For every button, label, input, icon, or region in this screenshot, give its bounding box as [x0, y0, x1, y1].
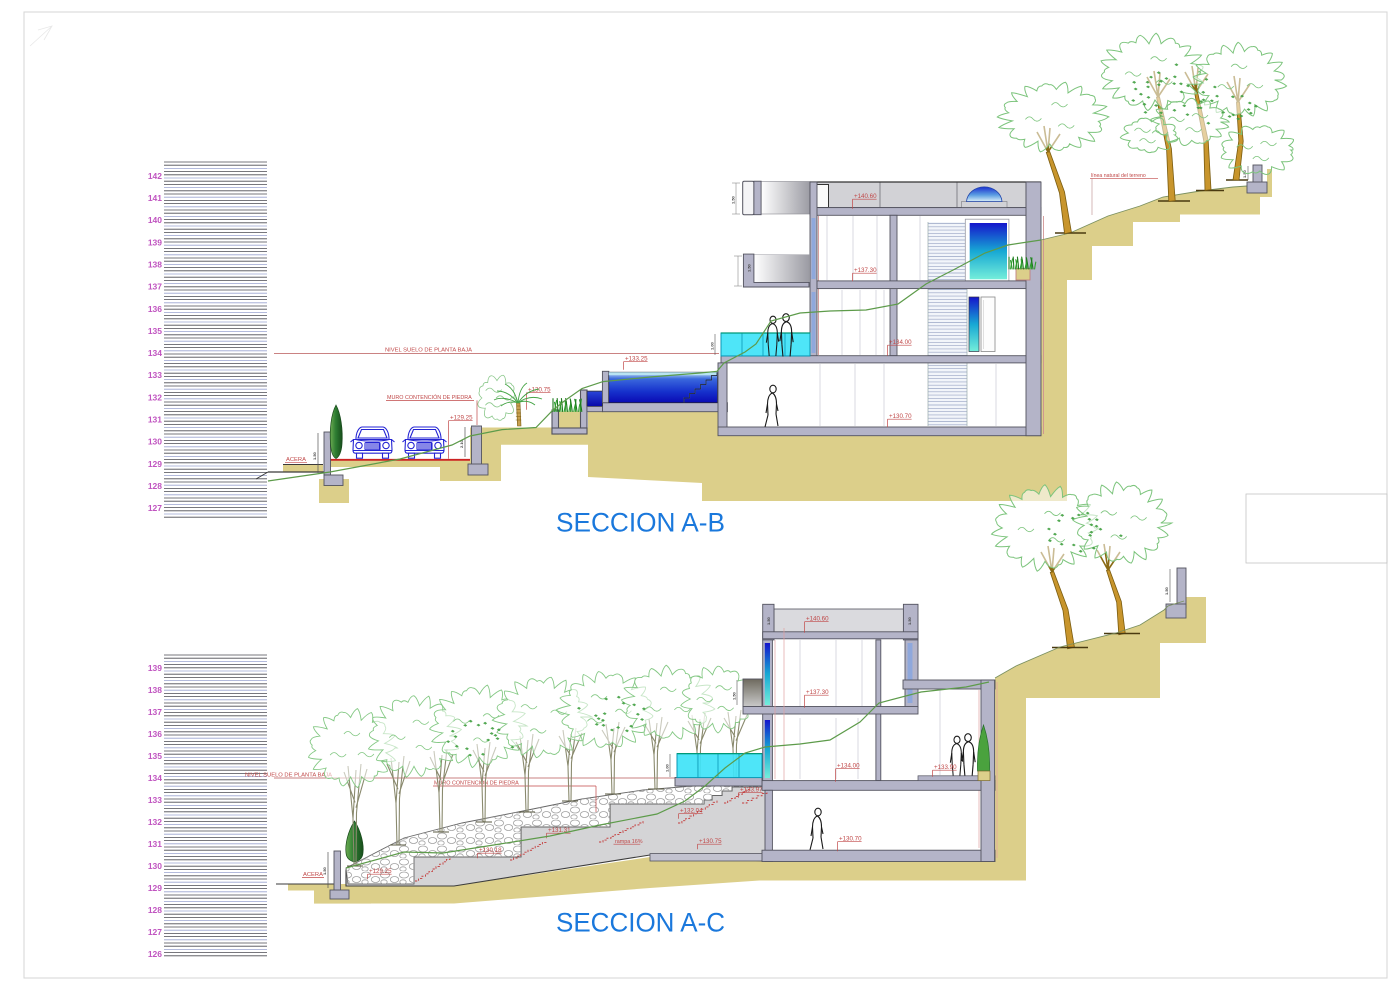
- svg-text:1.50: 1.50: [766, 616, 771, 625]
- svg-text:138: 138: [148, 685, 162, 695]
- svg-text:139: 139: [148, 237, 162, 247]
- svg-text:140: 140: [148, 215, 162, 225]
- svg-text:133: 133: [148, 370, 162, 380]
- svg-text:133: 133: [148, 795, 162, 805]
- svg-text:MURO CONTENCIÓN DE PIEDRA: MURO CONTENCIÓN DE PIEDRA: [387, 394, 472, 401]
- svg-text:136: 136: [148, 304, 162, 314]
- svg-text:138: 138: [148, 259, 162, 269]
- svg-text:132: 132: [148, 392, 162, 402]
- svg-text:131: 131: [148, 839, 162, 849]
- svg-text:142: 142: [148, 171, 162, 181]
- svg-text:SECCION A-C: SECCION A-C: [556, 908, 725, 938]
- svg-text:127: 127: [148, 927, 162, 937]
- svg-text:130: 130: [148, 861, 162, 871]
- svg-text:SECCION A-B: SECCION A-B: [556, 508, 725, 538]
- svg-text:128: 128: [148, 481, 162, 491]
- svg-text:141: 141: [148, 193, 162, 203]
- svg-text:129: 129: [148, 459, 162, 469]
- svg-text:MURO CONTENCIÓN DE PIEDRA: MURO CONTENCIÓN DE PIEDRA: [434, 780, 519, 787]
- svg-text:NIVEL SUELO DE PLANTA BAJA: NIVEL SUELO DE PLANTA BAJA: [245, 773, 332, 779]
- svg-text:1.00: 1.00: [710, 341, 715, 350]
- svg-text:137: 137: [148, 282, 162, 292]
- svg-text:1.50: 1.50: [732, 691, 737, 700]
- svg-text:1.00: 1.00: [665, 763, 670, 772]
- svg-text:1.50: 1.50: [907, 616, 912, 625]
- svg-text:129: 129: [148, 883, 162, 893]
- svg-text:131: 131: [148, 415, 162, 425]
- svg-text:136: 136: [148, 729, 162, 739]
- svg-text:130: 130: [148, 437, 162, 447]
- svg-text:134: 134: [148, 348, 162, 358]
- svg-text:135: 135: [148, 326, 162, 336]
- svg-text:1.50: 1.50: [312, 451, 317, 460]
- svg-text:127: 127: [148, 503, 162, 513]
- svg-text:126: 126: [148, 949, 162, 959]
- svg-text:NIVEL SUELO DE PLANTA BAJA: NIVEL SUELO DE PLANTA BAJA: [385, 348, 472, 354]
- svg-text:137: 137: [148, 707, 162, 717]
- svg-text:139: 139: [148, 663, 162, 673]
- svg-text:1.50: 1.50: [322, 866, 327, 875]
- svg-text:1.50: 1.50: [747, 263, 752, 272]
- svg-text:135: 135: [148, 751, 162, 761]
- svg-text:132: 132: [148, 817, 162, 827]
- svg-text:128: 128: [148, 905, 162, 915]
- svg-text:1.50: 1.50: [731, 195, 736, 204]
- svg-text:134: 134: [148, 773, 162, 783]
- svg-text:1.50: 1.50: [1164, 586, 1169, 595]
